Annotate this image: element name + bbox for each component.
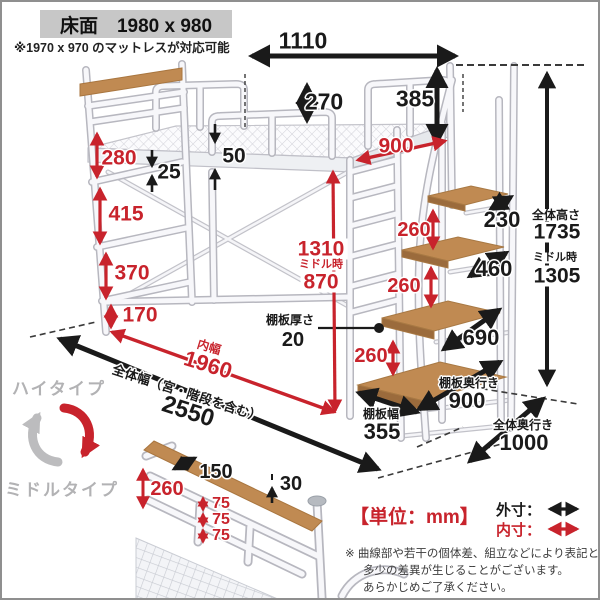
dim-ladder-gap-4: 170 — [122, 305, 157, 326]
type-swap-arrows-icon — [33, 408, 90, 462]
dim-step-depth-3: 690 — [463, 327, 500, 349]
high-type-label: ハイタイプ — [12, 381, 106, 398]
dim-mesh-inset: 25 — [157, 162, 180, 183]
dim-detail-top-gap: 30 — [280, 474, 302, 494]
dim-detail-headboard-height: 260 — [150, 479, 183, 499]
dim-detail-rail-gap-1: 75 — [212, 496, 230, 512]
post-cap — [308, 496, 326, 506]
dim-detail-rail-gap-3: 75 — [212, 528, 230, 544]
dim-deck-thickness: 50 — [222, 146, 245, 167]
dim-under-height-high: 1310 — [295, 239, 348, 260]
inner-dim-legend: 内寸： — [496, 521, 541, 541]
dim-guard-rail-height: 270 — [305, 91, 343, 114]
middle-type-note: ミドル時 — [296, 260, 346, 271]
product-dimension-diagram: { "header": { "floor_label": "床面 1980 x … — [0, 0, 600, 600]
disclaimer-line-1: ※ 曲線部や若干の個体差、組立などにより表記と — [345, 547, 599, 562]
overall-height-label: 全体高さ — [529, 209, 583, 221]
dim-ladder-gap-1: 280 — [101, 148, 136, 169]
unit-label: 【単位：mm】 — [350, 506, 479, 531]
dim-step-gap-2: 260 — [387, 276, 420, 296]
overall-height-mid-label: ミドル時 — [530, 253, 580, 264]
dim-ladder-gap-2: 415 — [108, 204, 143, 225]
dim-step-depth-2: 460 — [476, 258, 513, 280]
dim-step-gap-1: 260 — [397, 220, 430, 240]
dim-step-depth-1: 230 — [484, 209, 521, 231]
disclaimer-line-2: 多少の差異が生じることがございます。 — [363, 564, 569, 579]
dim-detail-shelf-grip: 150 — [199, 462, 232, 482]
dim-overall-height-mid: 1305 — [531, 266, 584, 287]
dim-shelf-depth: 900 — [449, 390, 486, 412]
dim-entry-width: 1110 — [279, 30, 328, 53]
dim-stair-rail-height: 385 — [396, 88, 434, 111]
dim-detail-rail-gap-2: 75 — [212, 512, 230, 528]
mattress-note: ※1970 x 970 のマットレスが対応可能 — [14, 40, 230, 56]
outer-dim-legend: 外寸： — [496, 501, 541, 521]
floor-size-header: 床面 1980 x 980 — [40, 10, 232, 38]
dim-under-height-middle: 870 — [300, 272, 341, 293]
dim-shelf-width: 355 — [364, 421, 401, 443]
dim-bed-depth: 900 — [378, 136, 413, 157]
callout-dot — [374, 323, 384, 333]
dim-ladder-gap-3: 370 — [114, 263, 149, 284]
middle-type-label: ミドルタイプ — [5, 482, 119, 499]
disclaimer-line-3: あらかじめご了承ください。 — [363, 581, 513, 596]
dim-overall-depth: 1000 — [500, 432, 549, 454]
shelf-thickness-label: 棚板厚さ — [266, 314, 314, 326]
dim-shelf-thickness: 20 — [282, 330, 304, 350]
dim-overall-height: 1735 — [531, 222, 584, 243]
dim-step-gap-3: 260 — [354, 346, 387, 366]
